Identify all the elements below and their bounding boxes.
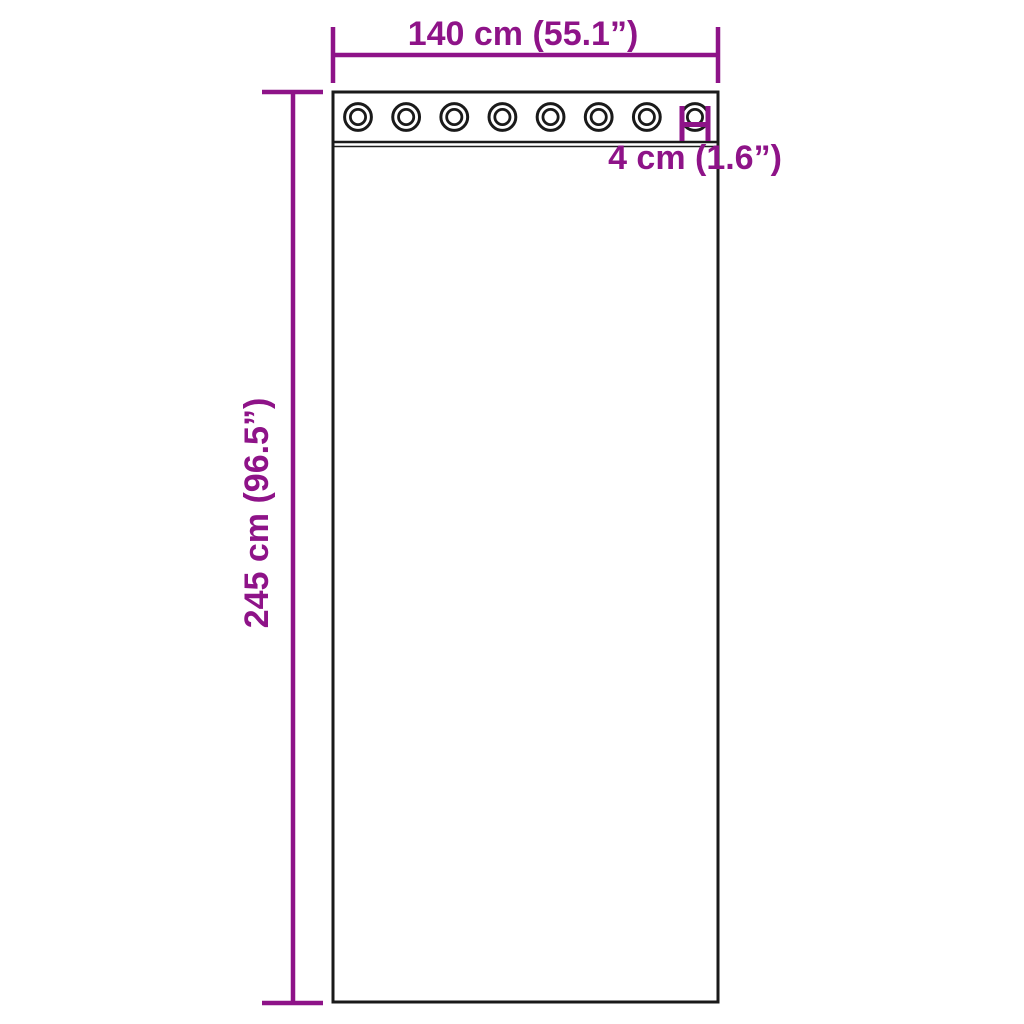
width-dimension-label: 140 cm (55.1”) <box>408 15 639 53</box>
height-dimension-label: 245 cm (96.5”) <box>238 398 276 629</box>
height-dimension: 245 cm (96.5”) <box>238 92 323 1003</box>
dimension-diagram: 140 cm (55.1”) 245 cm (96.5”) 4 cm (1.6”… <box>0 0 1024 1024</box>
width-dimension: 140 cm (55.1”) <box>333 15 718 83</box>
diagram-canvas: 140 cm (55.1”) 245 cm (96.5”) 4 cm (1.6”… <box>0 0 1024 1024</box>
curtain-panel <box>333 92 718 1002</box>
grommet-dimension-label: 4 cm (1.6”) <box>608 139 782 177</box>
